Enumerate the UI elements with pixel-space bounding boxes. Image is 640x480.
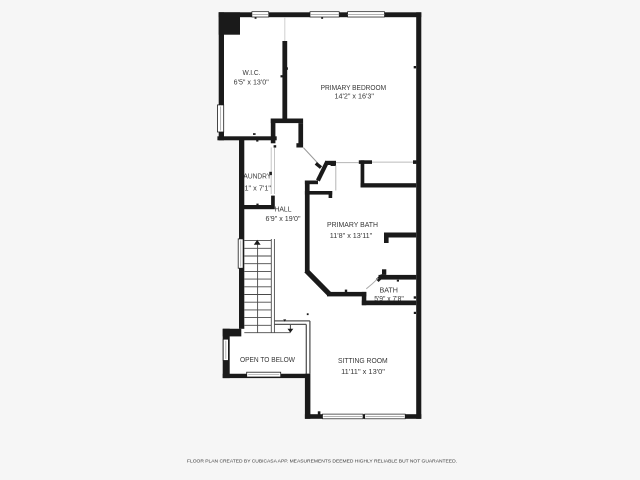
svg-text:FLOOR PLAN CREATED BY CUBICASA: FLOOR PLAN CREATED BY CUBICASA APP. MEAS… <box>187 458 457 463</box>
svg-text:6'9" x 19'0": 6'9" x 19'0" <box>266 216 302 223</box>
svg-text:BATH: BATH <box>379 285 398 294</box>
svg-text:14'2" x 16'3": 14'2" x 16'3" <box>335 94 375 101</box>
svg-text:SITTING ROOM: SITTING ROOM <box>338 356 388 365</box>
svg-text:11'8" x 13'11": 11'8" x 13'11" <box>330 233 373 240</box>
svg-text:HALL: HALL <box>275 205 292 214</box>
svg-text:11'11" x 13'0": 11'11" x 13'0" <box>341 369 385 376</box>
svg-text:PRIMARY BATH: PRIMARY BATH <box>327 220 378 229</box>
svg-text:OPEN TO BELOW: OPEN TO BELOW <box>240 355 296 364</box>
svg-text:LAUNDRY: LAUNDRY <box>240 172 272 181</box>
svg-text:PRIMARY BEDROOM: PRIMARY BEDROOM <box>321 83 387 92</box>
svg-text:6'5" x 13'0": 6'5" x 13'0" <box>234 80 270 87</box>
svg-text:W.I.C.: W.I.C. <box>243 68 261 77</box>
